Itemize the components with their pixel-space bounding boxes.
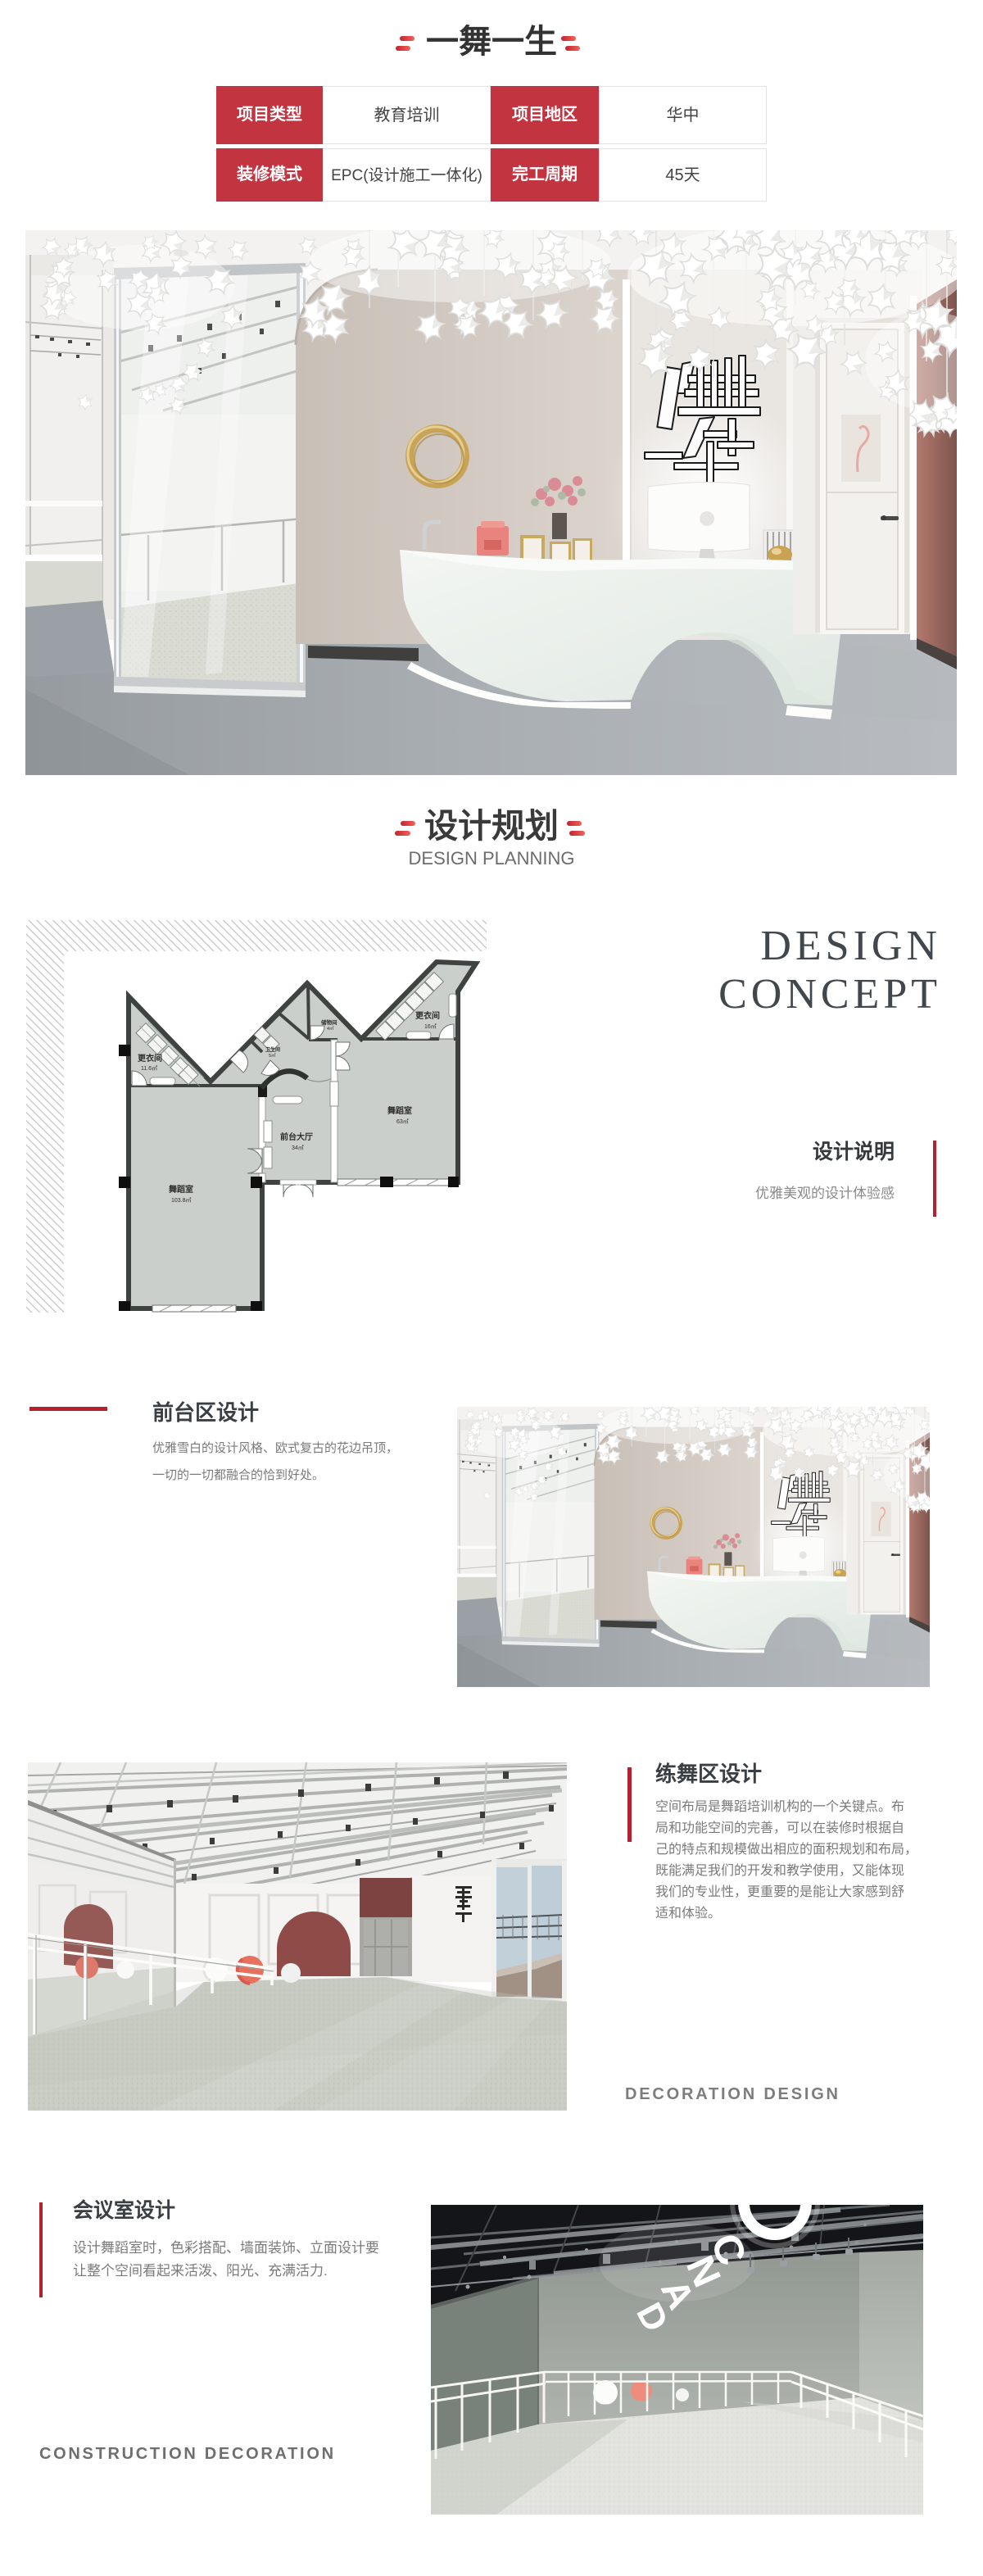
svg-text:舞蹈室: 舞蹈室 [169, 1184, 193, 1195]
svg-text:储物间: 储物间 [320, 1018, 337, 1026]
svg-text:更衣间: 更衣间 [415, 1010, 440, 1021]
svg-text:前台大厅: 前台大厅 [280, 1132, 313, 1142]
svg-text:舞蹈室: 舞蹈室 [387, 1105, 412, 1116]
svg-text:更衣间: 更衣间 [138, 1053, 162, 1064]
svg-text:卫生间: 卫生间 [265, 1046, 280, 1053]
svg-text:103.8㎡: 103.8㎡ [171, 1197, 192, 1204]
svg-text:11.6㎡: 11.6㎡ [141, 1065, 157, 1072]
svg-text:16㎡: 16㎡ [424, 1023, 437, 1030]
svg-text:34㎡: 34㎡ [292, 1145, 304, 1151]
svg-text:63㎡: 63㎡ [396, 1118, 409, 1125]
svg-text:5㎡: 5㎡ [269, 1052, 276, 1059]
svg-text:4㎡: 4㎡ [327, 1025, 334, 1032]
